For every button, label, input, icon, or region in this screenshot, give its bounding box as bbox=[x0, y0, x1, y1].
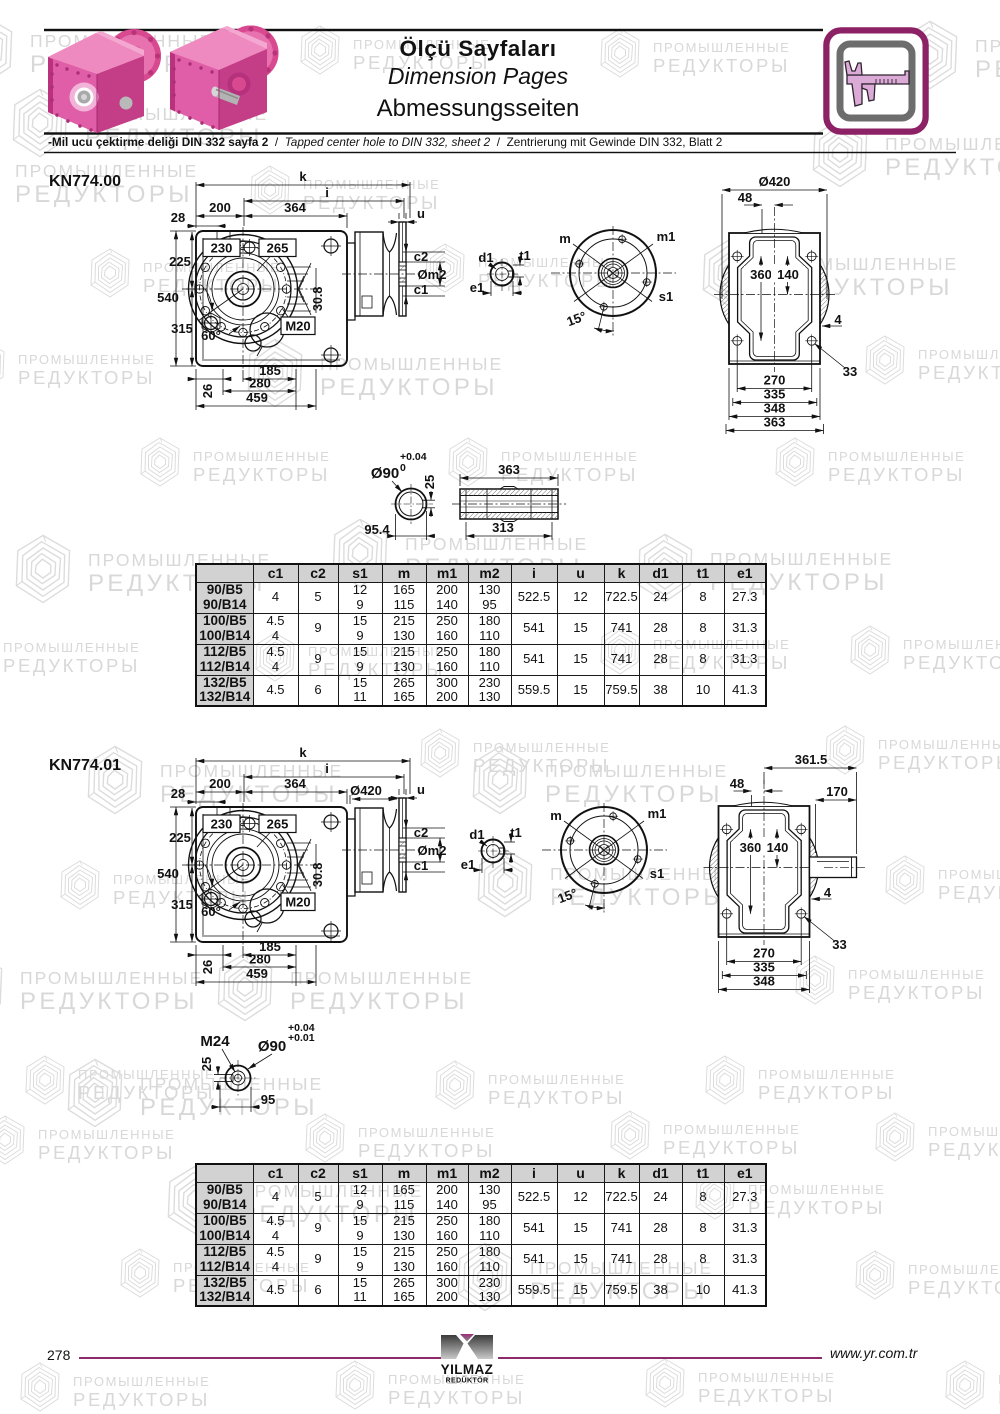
svg-text:YILMAZ: YILMAZ bbox=[441, 1362, 493, 1377]
svg-text:Ø420: Ø420 bbox=[759, 174, 791, 189]
svg-text:170: 170 bbox=[826, 784, 848, 799]
svg-text:48: 48 bbox=[738, 190, 752, 205]
svg-text:48: 48 bbox=[730, 776, 744, 791]
svg-text:Ø420: Ø420 bbox=[350, 783, 382, 798]
svg-text:363: 363 bbox=[764, 415, 786, 430]
svg-text:361.5: 361.5 bbox=[795, 752, 828, 767]
svg-text:REDÜKTÖR: REDÜKTÖR bbox=[446, 1376, 489, 1385]
